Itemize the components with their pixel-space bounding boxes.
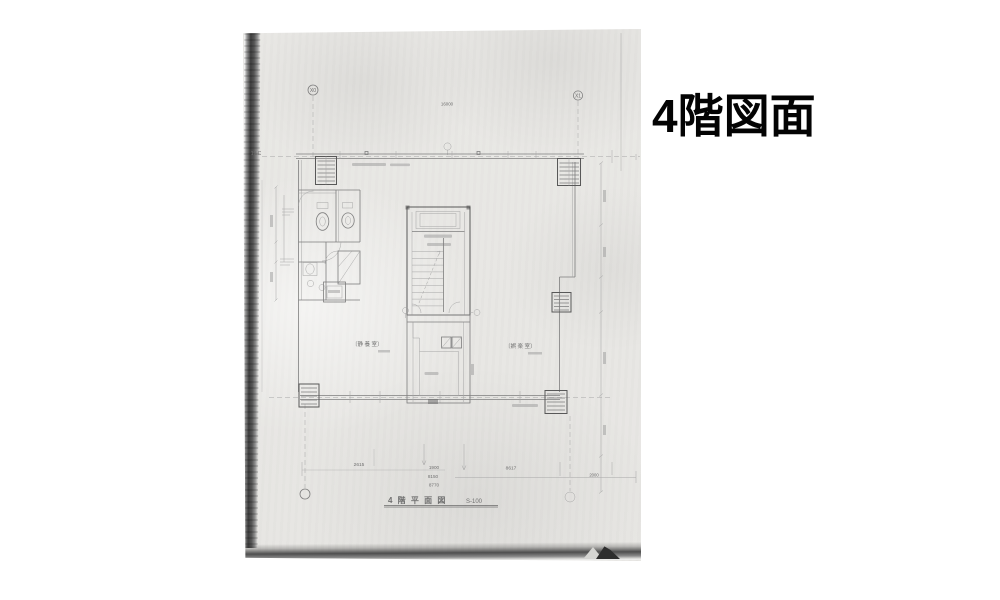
screenshot-canvas: X0 X1 19 C [0,0,1000,600]
scanned-blueprint-page [243,29,641,561]
page-title: 4階図面 [652,92,816,142]
page-bottom-edge-shadow [245,542,642,562]
book-spine-shadow [242,33,261,548]
paper-crease [620,33,622,171]
